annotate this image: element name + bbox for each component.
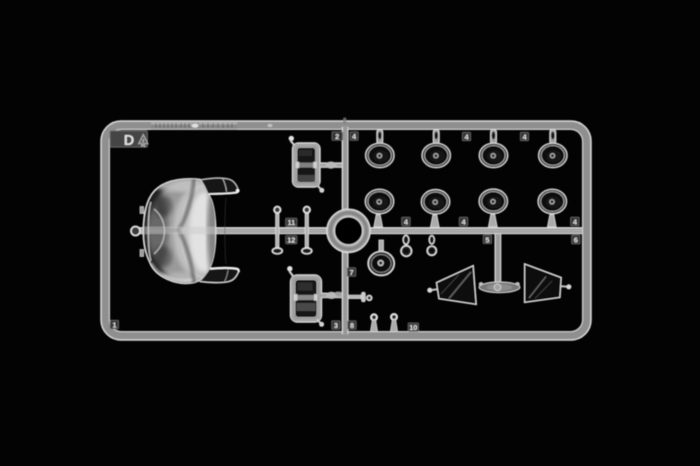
svg-text:8: 8: [350, 321, 354, 330]
svg-text:PS: PS: [141, 144, 145, 148]
svg-text:10: 10: [409, 323, 417, 332]
svg-text:1: 1: [112, 320, 116, 329]
svg-text:2: 2: [335, 132, 339, 141]
svg-text:6: 6: [574, 236, 578, 245]
svg-text:7: 7: [350, 268, 354, 277]
svg-text:3: 3: [334, 321, 338, 330]
svg-text:5: 5: [485, 235, 489, 244]
svg-text:12: 12: [287, 236, 295, 245]
svg-text:11: 11: [287, 218, 295, 227]
svg-text:D: D: [124, 133, 134, 149]
